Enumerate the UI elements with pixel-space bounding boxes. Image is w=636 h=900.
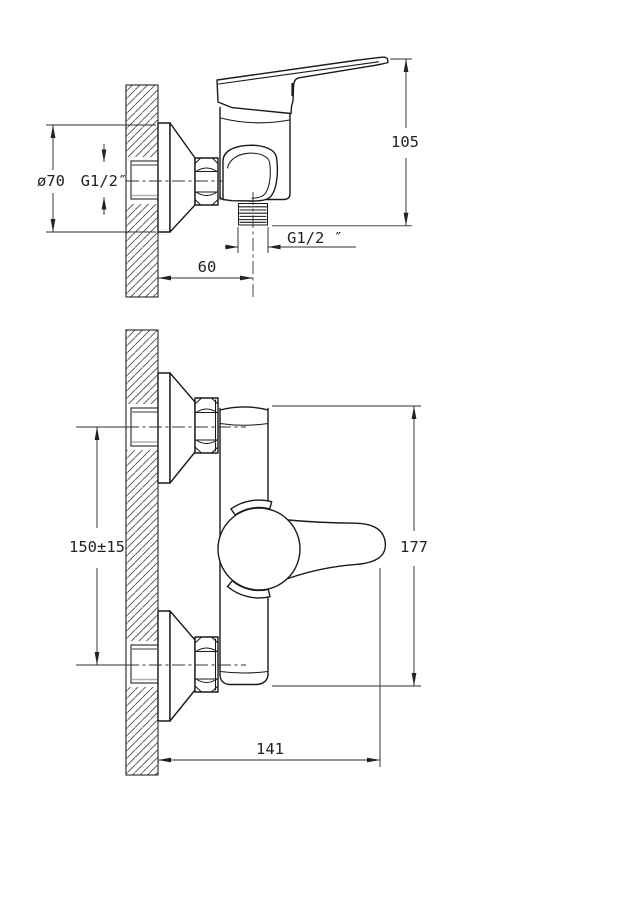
technical-drawing-page: ø70 G1/2″ 105 G1/2 ″ — [0, 0, 636, 900]
dim-label-width-141: 141 — [256, 740, 284, 758]
escutcheon-flange — [158, 123, 170, 232]
front-view — [126, 330, 385, 775]
dim-inlet-thread: G1/2″ — [81, 144, 128, 215]
escutcheon-flange-top — [158, 373, 170, 483]
dim-label-outlet-thread: G1/2 ″ — [287, 229, 343, 247]
escutcheon-cone-bottom — [170, 611, 195, 721]
handle-knob — [218, 508, 300, 590]
dim-wall-to-outlet: 60 — [158, 258, 253, 280]
dim-outlet-thread: G1/2 ″ — [225, 227, 356, 253]
dim-label-height-105: 105 — [391, 133, 419, 151]
dim-label-flange-diameter: ø70 — [37, 172, 65, 190]
escutcheon-cone — [170, 123, 195, 232]
dim-label-inlet-spacing: 150±15 — [69, 538, 125, 556]
hex-nut — [195, 158, 218, 205]
wall-hatch — [126, 330, 158, 775]
dim-label-inlet-thread: G1/2″ — [81, 172, 128, 190]
escutcheon-cone-top — [170, 373, 195, 483]
shower-mixer-dimension-drawing: ø70 G1/2″ 105 G1/2 ″ — [0, 0, 636, 900]
dim-label-height-177: 177 — [400, 538, 428, 556]
hex-nut-top — [195, 398, 218, 453]
dim-inlet-spacing: 150±15 — [69, 427, 128, 665]
body-seam — [221, 118, 290, 123]
escutcheon-flange-bottom — [158, 611, 170, 721]
hex-nut-bottom — [195, 637, 218, 692]
lever-handle-front — [288, 520, 385, 579]
dim-label-wall-to-outlet: 60 — [198, 258, 217, 276]
lever-handle — [217, 57, 388, 113]
side-view — [126, 57, 388, 300]
lever-top-edge — [219, 62, 379, 84]
